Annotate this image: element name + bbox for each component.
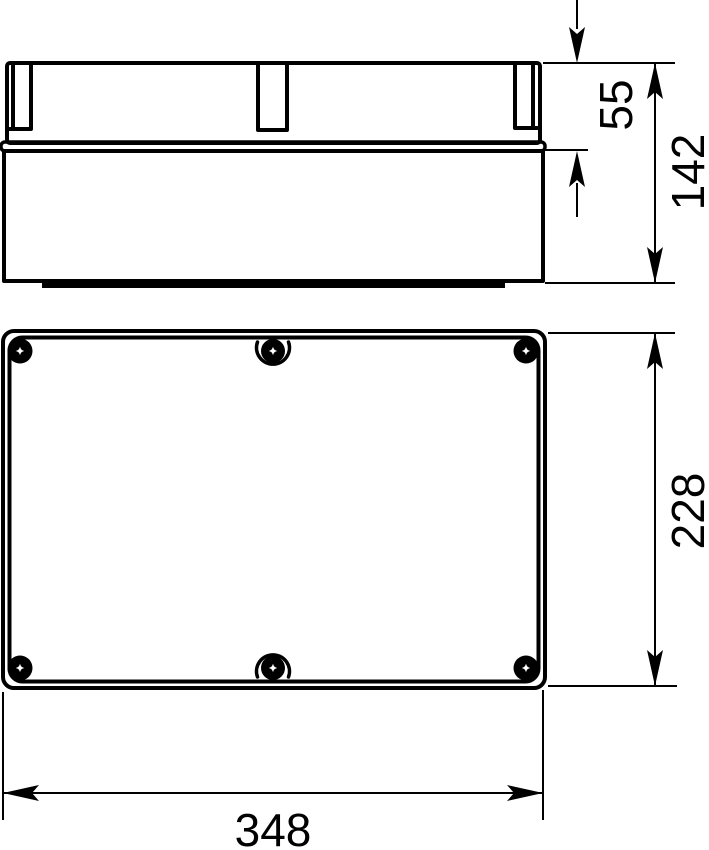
lid-outer-edge xyxy=(3,331,545,688)
plan-view xyxy=(3,331,545,688)
plan-view-dimensions: 228 348 xyxy=(3,333,709,850)
screw-channel-left xyxy=(10,63,32,129)
dimension-text-total-height: 142 xyxy=(662,134,709,211)
screw-channel-right xyxy=(515,63,539,128)
screw-channel-middle xyxy=(258,63,287,130)
dimension-text-lid-height: 55 xyxy=(590,79,642,130)
dimension-drawing: 55 142 228 xyxy=(0,0,709,850)
dimension-text-box-depth: 228 xyxy=(662,473,709,550)
arrowhead-up-55 xyxy=(569,151,585,187)
side-view-dimensions: 55 142 xyxy=(543,0,709,283)
drawing-canvas: 55 142 228 xyxy=(0,0,709,850)
side-view xyxy=(1,63,545,286)
lid-inner-edge xyxy=(10,338,539,682)
box-body-outline xyxy=(4,151,543,281)
arrowhead-down-55 xyxy=(569,27,585,63)
dimension-text-box-width: 348 xyxy=(235,804,312,850)
